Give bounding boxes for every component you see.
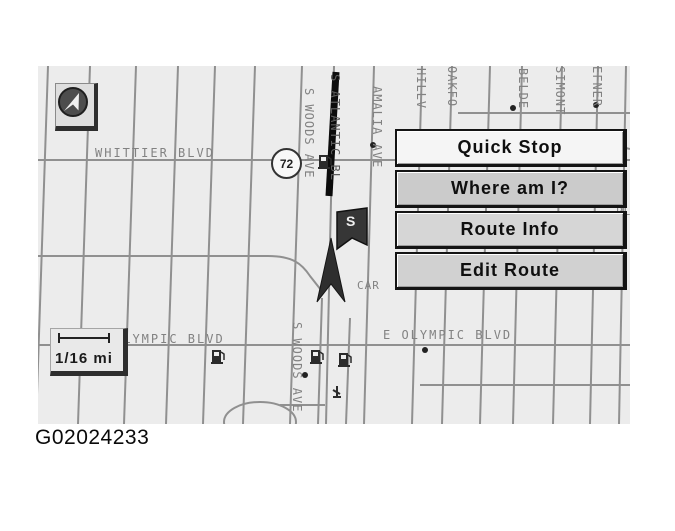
street-label-s-woods-ave-lower: S WOODS AVE xyxy=(290,322,304,412)
fuel-pump-icon xyxy=(310,347,326,365)
street-label-s-woods-ave-upper: S WOODS AVE xyxy=(302,88,316,178)
menu-item-label: Quick Stop xyxy=(457,137,562,158)
menu-item-where-am-i[interactable]: Where am I? xyxy=(395,170,627,208)
vehicle-arrow-icon xyxy=(314,236,350,310)
menu-item-route-info[interactable]: Route Info xyxy=(395,211,627,249)
street-label-e-olympic-blvd: E OLYMPIC BLVD xyxy=(383,328,512,342)
menu-item-quick-stop[interactable]: Quick Stop xyxy=(395,129,627,167)
destination-flag-letter: S xyxy=(346,213,355,229)
figure-id: G02024233 xyxy=(35,426,149,450)
poi-icon xyxy=(330,384,344,400)
map-menu: Quick Stop Where am I? Route Info Edit R… xyxy=(395,129,627,293)
menu-item-edit-route[interactable]: Edit Route xyxy=(395,252,627,290)
map-canvas: 72 WHITTIER BLVD OLYMPIC BLVD E OLYMPIC … xyxy=(38,66,630,424)
map-scale-widget: 1/16 mi xyxy=(50,328,128,376)
street-label-amalia-ave: AMALIA AVE xyxy=(370,86,384,168)
street-label-whittier-blvd: WHITTIER BLVD xyxy=(95,146,215,160)
street-label-hefner: EFNER xyxy=(590,66,604,107)
compass-widget xyxy=(55,83,98,131)
scale-bar-icon xyxy=(51,329,117,345)
street-label-olympic-blvd-west: OLYMPIC BLVD xyxy=(114,332,225,346)
street-label-car-fragment: CAR xyxy=(357,279,380,292)
fuel-pump-icon xyxy=(211,347,227,365)
fuel-pump-icon xyxy=(338,350,354,368)
map-scale-label: 1/16 mi xyxy=(55,350,123,367)
fuel-pump-icon xyxy=(318,152,334,170)
street-label-belden: BELDE xyxy=(516,68,530,109)
route-shield-72: 72 xyxy=(271,148,302,179)
street-label-oakford: OAKFO xyxy=(445,66,459,107)
street-label-hillview: HILLV xyxy=(414,68,428,109)
route-shield-number: 72 xyxy=(280,157,293,171)
nav-screenshot-page: 72 WHITTIER BLVD OLYMPIC BLVD E OLYMPIC … xyxy=(0,0,675,531)
menu-item-label: Route Info xyxy=(461,219,560,240)
menu-item-label: Where am I? xyxy=(451,178,569,199)
north-arrow-icon xyxy=(56,84,90,121)
menu-item-label: Edit Route xyxy=(460,260,560,281)
street-label-simont: SIMONT xyxy=(553,66,567,115)
